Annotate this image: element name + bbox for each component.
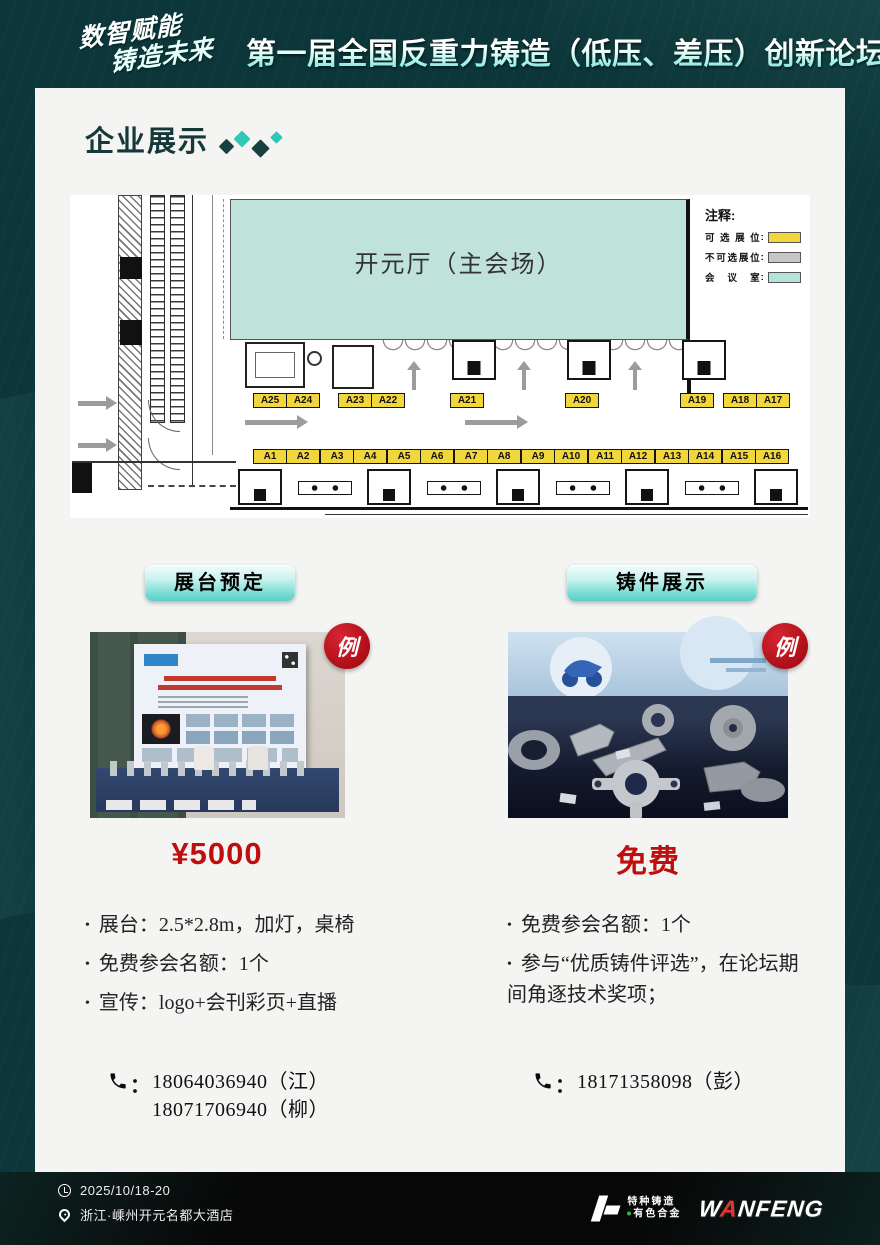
photo-motorcycle-circle-graphic (550, 637, 612, 699)
poster-thumbnails-graphic (142, 748, 298, 762)
contact-left: ： 18064036940（江）18071706940（柳） (108, 1068, 329, 1124)
photo-poster-board-graphic (134, 644, 306, 770)
special-casting-logo: 特种铸造 有色合金 (593, 1196, 681, 1222)
bullet-item: 展台：2.5*2.8m，加灯，桌椅 (85, 910, 440, 941)
booth-label-a6: A6 (420, 449, 454, 464)
booth-label-a24: A24 (286, 393, 320, 408)
phone-icon (108, 1071, 128, 1091)
booth-label-a4: A4 (353, 449, 387, 464)
footer-venue-row: 浙江·嵊州开元名都大酒店 (58, 1205, 233, 1224)
booth-group: A23A22 (338, 393, 405, 408)
column-box-graphic (452, 340, 496, 380)
example-badge: 例 (762, 623, 808, 669)
benefit-list-left: 展台：2.5*2.8m，加灯，桌椅免费参会名额：1个宣传：logo+会刊彩页+直… (85, 910, 440, 1027)
booth-group: A21 (450, 393, 484, 408)
footer-date-row: 2025/10/18-20 (58, 1183, 233, 1198)
poster-text-graphic (158, 696, 248, 710)
booth-row-top: A25A24A23A22A21A20A19A18A17 (70, 393, 810, 409)
special-casting-logo-text: 特种铸造 有色合金 (627, 1197, 681, 1221)
legend-swatch (768, 232, 801, 243)
legend-swatch (768, 252, 801, 263)
location-pin-icon (57, 1207, 73, 1223)
booth-label-a23: A23 (338, 393, 372, 408)
wanfeng-logo: WANFENG (698, 1195, 825, 1222)
booth-reserve-button[interactable]: 展台预定 (145, 565, 295, 601)
legend-colon: : (761, 272, 764, 283)
diamond-icon (219, 138, 235, 154)
booth-label-a2: A2 (286, 449, 320, 464)
logo-text-line2: 有色合金 (627, 1209, 681, 1221)
column-ring-graphic (307, 351, 322, 366)
photo-text-graphic (710, 658, 766, 663)
booth-label-a5: A5 (387, 449, 421, 464)
legend-swatch (768, 272, 801, 283)
booth-label-a3: A3 (320, 449, 354, 464)
booth-group: A1A2 (253, 449, 320, 464)
photo-box-graphic (248, 746, 268, 770)
diamond-icons (221, 133, 281, 146)
bullet-item: 免费参会名额：1个 (507, 910, 815, 941)
arrow-right-icon (78, 443, 106, 448)
furniture-graphic (625, 469, 669, 505)
booth-group: A3A4 (320, 449, 387, 464)
logo-text-line1: 特种铸造 (627, 1197, 681, 1209)
castings-photo-example: 例 (508, 632, 788, 818)
price-booth: ¥5000 (72, 836, 362, 872)
special-casting-logo-icon (593, 1196, 621, 1222)
phone-icon (533, 1071, 553, 1091)
booth-group: A5A6 (387, 449, 454, 464)
furniture-graphic (298, 481, 352, 495)
furniture-graphic (427, 481, 481, 495)
content-card: 企业展示 开元厅（主会场） 注释: 可选展位:不 (35, 88, 845, 1172)
booth-label-a18: A18 (723, 393, 757, 408)
booth-group: A9A10 (521, 449, 588, 464)
furniture-graphic (685, 481, 739, 495)
poster-thumbnails-graphic (186, 731, 298, 744)
footer: 2025/10/18-20 浙江·嵊州开元名都大酒店 特种铸造 有色合金 WAN… (0, 1172, 880, 1245)
bullet-item: 免费参会名额：1个 (85, 949, 440, 980)
poster-headline-graphic (158, 685, 282, 690)
column-block-graphic (120, 320, 142, 345)
phone-numbers: 18171358098（彭） (577, 1068, 754, 1096)
curtain-scallop-graphic (382, 340, 690, 352)
hall-label: 开元厅（主会场） (355, 244, 563, 339)
booth-label-a1: A1 (253, 449, 287, 464)
section-header: 企业展示 (85, 118, 281, 160)
column-block-graphic (120, 257, 142, 279)
booth-label-a13: A13 (655, 449, 689, 464)
legend-label: 会议室 (705, 270, 760, 284)
benefit-list-right: 免费参会名额：1个参与“优质铸件评选”，在论坛期间角逐技术奖项； (507, 910, 815, 1018)
legend: 注释: 可选展位:不可选展位:会议室: (698, 199, 808, 292)
section-title: 企业展示 (85, 118, 209, 160)
booth-label-a8: A8 (487, 449, 521, 464)
bullet-item: 宣传：logo+会刊彩页+直播 (85, 988, 440, 1019)
poster-logo-graphic (144, 654, 178, 666)
poster-headline-graphic (164, 676, 276, 681)
furniture-graphic (238, 469, 282, 505)
phone-number: 18064036940（江） (152, 1068, 329, 1096)
room-graphic (332, 345, 374, 389)
legend-row: 可选展位: (705, 230, 801, 244)
escalator-graphic (170, 195, 185, 423)
arrow-up-icon (412, 370, 416, 390)
legend-label: 不可选展位 (705, 250, 760, 264)
column-block-graphic (72, 463, 92, 493)
escalator-graphic (150, 195, 165, 423)
booth-label-a10: A10 (554, 449, 588, 464)
booth-label-a9: A9 (521, 449, 555, 464)
castings-display-button[interactable]: 铸件展示 (567, 565, 757, 601)
legend-title: 注释: (705, 205, 801, 224)
red-dash-line (223, 199, 224, 339)
booth-group: A25A24 (253, 393, 320, 408)
legend-colon: : (761, 232, 764, 243)
booth-label-a20: A20 (565, 393, 599, 408)
zigzag-wall-graphic (148, 485, 236, 487)
castings-graphic (508, 698, 788, 818)
column-box-graphic (567, 340, 611, 380)
photo-text-graphic (726, 668, 766, 672)
booth-group: A13A14 (655, 449, 722, 464)
footer-logos: 特种铸造 有色合金 WANFENG (593, 1195, 824, 1222)
photo-circle-graphic (680, 616, 754, 690)
baseline-graphic (230, 507, 808, 510)
furniture-graphic (754, 469, 798, 505)
booth-label-a25: A25 (253, 393, 287, 408)
booth-group: A15A16 (722, 449, 789, 464)
page-title: 第一届全国反重力铸造（低压、差压）创新论坛 (246, 29, 880, 73)
poster-qr-graphic (282, 652, 298, 668)
diamond-icon (270, 131, 283, 144)
legend-colon: : (761, 252, 764, 263)
booth-photo-example: 例 (90, 632, 345, 818)
floor-plan: 开元厅（主会场） 注释: 可选展位:不可选展位:会议室: A25A24A23A2… (70, 195, 810, 518)
event-venue: 浙江·嵊州开元名都大酒店 (80, 1205, 233, 1224)
diamond-icon (251, 139, 269, 157)
booth-label-a16: A16 (755, 449, 789, 464)
arrow-right-icon (245, 420, 297, 425)
legend-row: 会议室: (705, 270, 801, 284)
poster-image-graphic (142, 714, 180, 744)
phone-numbers: 18064036940（江）18071706940（柳） (152, 1068, 329, 1124)
phone-colon: ： (130, 1069, 150, 1098)
booth-group: A18A17 (723, 393, 790, 408)
example-badge: 例 (324, 623, 370, 669)
green-dot-icon (627, 1212, 631, 1216)
room-graphic (245, 342, 305, 388)
booth-label-a17: A17 (756, 393, 790, 408)
booth-group: A20 (565, 393, 599, 408)
furniture-graphic (367, 469, 411, 505)
bullet-item: 参与“优质铸件评选”，在论坛期间角逐技术奖项； (507, 949, 815, 1010)
phone-number: 18071706940（柳） (152, 1096, 329, 1124)
wall-line (212, 195, 213, 455)
booth-label-a21: A21 (450, 393, 484, 408)
booth-label-a12: A12 (621, 449, 655, 464)
booth-group: A7A8 (454, 449, 521, 464)
booth-group: A11A12 (588, 449, 655, 464)
legend-rows: 可选展位:不可选展位:会议室: (705, 230, 801, 284)
clock-icon (58, 1184, 71, 1197)
poster-page: 数智赋能 铸造未来 第一届全国反重力铸造（低压、差压）创新论坛 企业展示 (0, 0, 880, 1245)
phone-number: 18171358098（彭） (577, 1068, 754, 1096)
booth-label-a14: A14 (688, 449, 722, 464)
photo-papers-graphic (106, 800, 256, 810)
legend-row: 不可选展位: (705, 250, 801, 264)
booth-label-a15: A15 (722, 449, 756, 464)
main-hall-area: 开元厅（主会场） (230, 199, 690, 340)
booth-label-a19: A19 (680, 393, 714, 408)
booth-label-a22: A22 (371, 393, 405, 408)
legend-label: 可选展位 (705, 230, 760, 244)
photo-box-graphic (194, 746, 214, 770)
furniture-graphic (496, 469, 540, 505)
arrow-right-icon (78, 401, 106, 406)
booth-row-bottom: A1A2A3A4A5A6A7A8A9A10A11A12A13A14A15A16 (70, 449, 810, 465)
wall-line (192, 195, 193, 485)
motorcycle-graphic (550, 637, 612, 699)
booth-group: A19 (680, 393, 714, 408)
booth-label-a7: A7 (454, 449, 488, 464)
footer-info: 2025/10/18-20 浙江·嵊州开元名都大酒店 (58, 1183, 233, 1231)
price-castings: 免费 (503, 836, 793, 881)
arrow-right-icon (465, 420, 517, 425)
contact-right: ： 18171358098（彭） (533, 1068, 754, 1098)
poster-thumbnails-graphic (186, 714, 298, 727)
diamond-icon (234, 130, 251, 147)
event-date: 2025/10/18-20 (80, 1183, 170, 1198)
baseline-graphic (325, 514, 808, 515)
booth-label-a11: A11 (588, 449, 622, 464)
furniture-graphic (556, 481, 610, 495)
arrow-up-icon (522, 370, 526, 390)
arrow-up-icon (633, 370, 637, 390)
phone-colon: ： (555, 1069, 575, 1098)
column-box-graphic (682, 340, 726, 380)
booth-furniture-row (238, 469, 798, 505)
